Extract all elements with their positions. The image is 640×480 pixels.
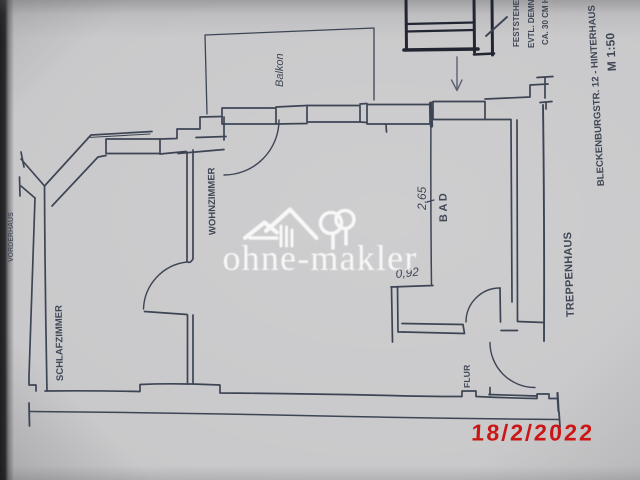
- svg-text:FESTSTEHENDES: FESTSTEHENDES: [512, 0, 521, 47]
- svg-text:FLUR: FLUR: [462, 364, 472, 388]
- svg-text:SCHLAFZIMMER: SCHLAFZIMMER: [54, 305, 66, 381]
- svg-text:TREPPENHAUS: TREPPENHAUS: [562, 232, 577, 318]
- svg-text:2,65: 2,65: [415, 186, 429, 211]
- svg-text:WOHNZIMMER: WOHNZIMMER: [206, 167, 218, 235]
- svg-text:BAD: BAD: [437, 191, 450, 223]
- svg-text:Balkon: Balkon: [274, 53, 286, 87]
- svg-text:ohne-makler: ohne-makler: [222, 238, 417, 278]
- svg-text:BLECKENBURGSTR. 12 - HINTERHAU: BLECKENBURGSTR. 12 - HINTERHAUS: [586, 4, 607, 186]
- svg-text:M 1:50: M 1:50: [603, 32, 619, 71]
- svg-text:VORDERHAUS: VORDERHAUS: [8, 212, 15, 262]
- svg-text:CA. 30 CM HOCH: CA. 30 CM HOCH: [541, 0, 550, 45]
- svg-text:EVTL. DEMNACHST: EVTL. DEMNACHST: [527, 0, 536, 48]
- svg-text:18/2/2022: 18/2/2022: [471, 420, 595, 446]
